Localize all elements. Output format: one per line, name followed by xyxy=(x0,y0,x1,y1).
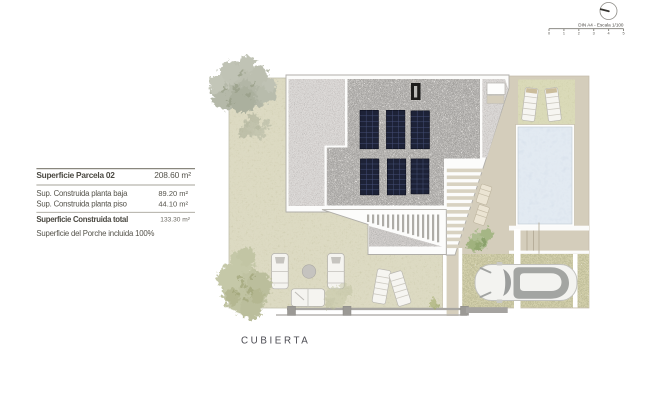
svg-text:0: 0 xyxy=(548,32,550,36)
svg-text:Superficie del Porche incluida: Superficie del Porche incluida 100% xyxy=(36,229,154,238)
svg-text:44.10 m²: 44.10 m² xyxy=(158,200,188,209)
svg-text:208.60 m²: 208.60 m² xyxy=(154,170,191,180)
svg-text:5: 5 xyxy=(622,32,624,36)
svg-text:Superficie Parcela 02: Superficie Parcela 02 xyxy=(36,170,115,180)
svg-text:2: 2 xyxy=(578,32,580,36)
svg-text:Sup. Construida planta baja: Sup. Construida planta baja xyxy=(36,189,128,198)
svg-text:4: 4 xyxy=(608,32,610,36)
svg-text:133.30 m²: 133.30 m² xyxy=(160,217,190,224)
svg-text:3: 3 xyxy=(593,32,595,36)
svg-text:Sup. Construida planta piso: Sup. Construida planta piso xyxy=(36,200,127,209)
svg-text:89.20 m²: 89.20 m² xyxy=(158,189,188,198)
svg-text:CUBIERTA: CUBIERTA xyxy=(241,336,310,347)
svg-text:DIN A4 - Escala 1/100: DIN A4 - Escala 1/100 xyxy=(578,22,624,27)
svg-text:1: 1 xyxy=(563,32,565,36)
svg-text:Superficie Construida total: Superficie Construida total xyxy=(36,215,128,224)
